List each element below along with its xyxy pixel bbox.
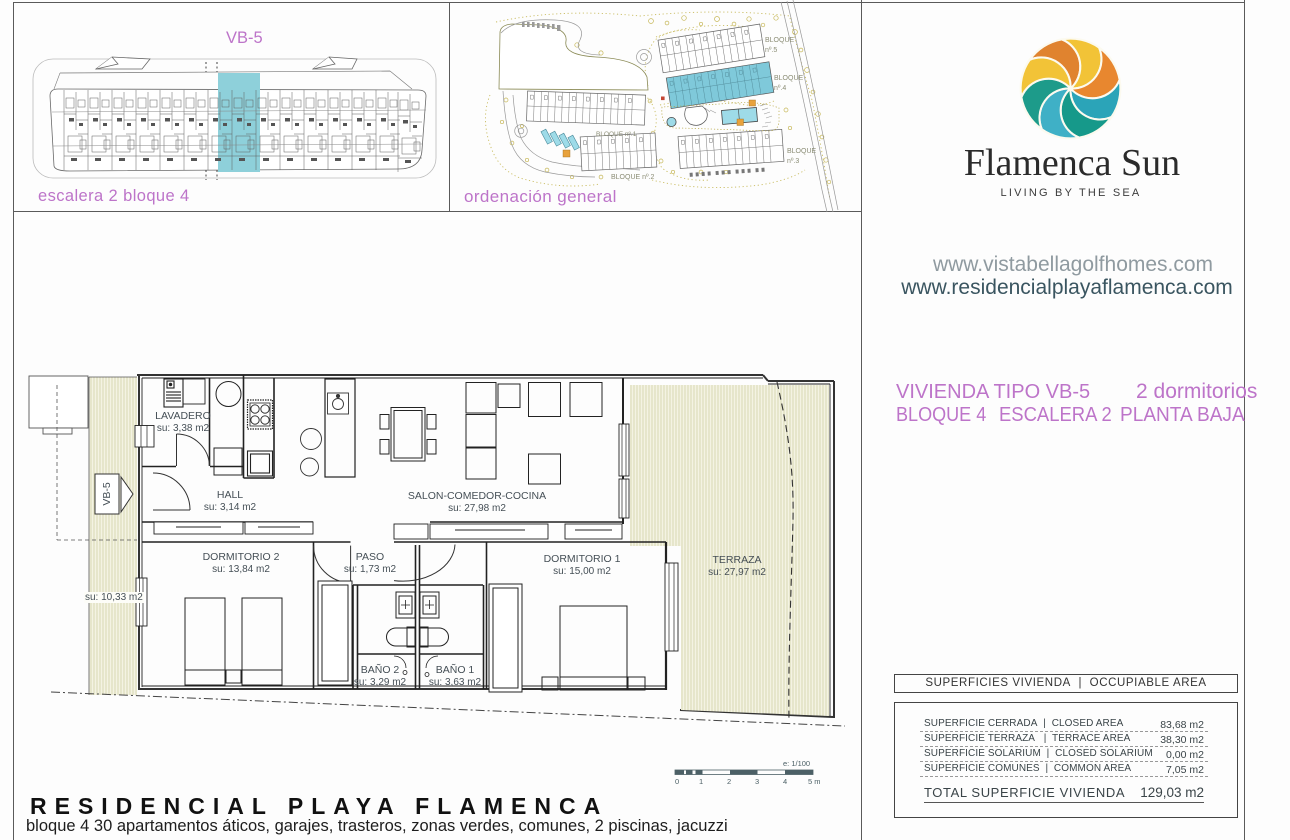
svg-text:BLOQUE nº.2: BLOQUE nº.2 bbox=[611, 174, 655, 181]
svg-text:nº.5: nº.5 bbox=[765, 47, 777, 54]
svg-text:nº.4: nº.4 bbox=[774, 85, 786, 92]
svg-text:nº.3: nº.3 bbox=[787, 158, 799, 165]
svg-text:BLOQUE: BLOQUE bbox=[774, 75, 804, 82]
svg-text:BLOQUE nº.1: BLOQUE nº.1 bbox=[596, 131, 637, 138]
svg-text:BLOQUE: BLOQUE bbox=[787, 148, 817, 155]
svg-text:BLOQUE: BLOQUE bbox=[765, 37, 795, 44]
